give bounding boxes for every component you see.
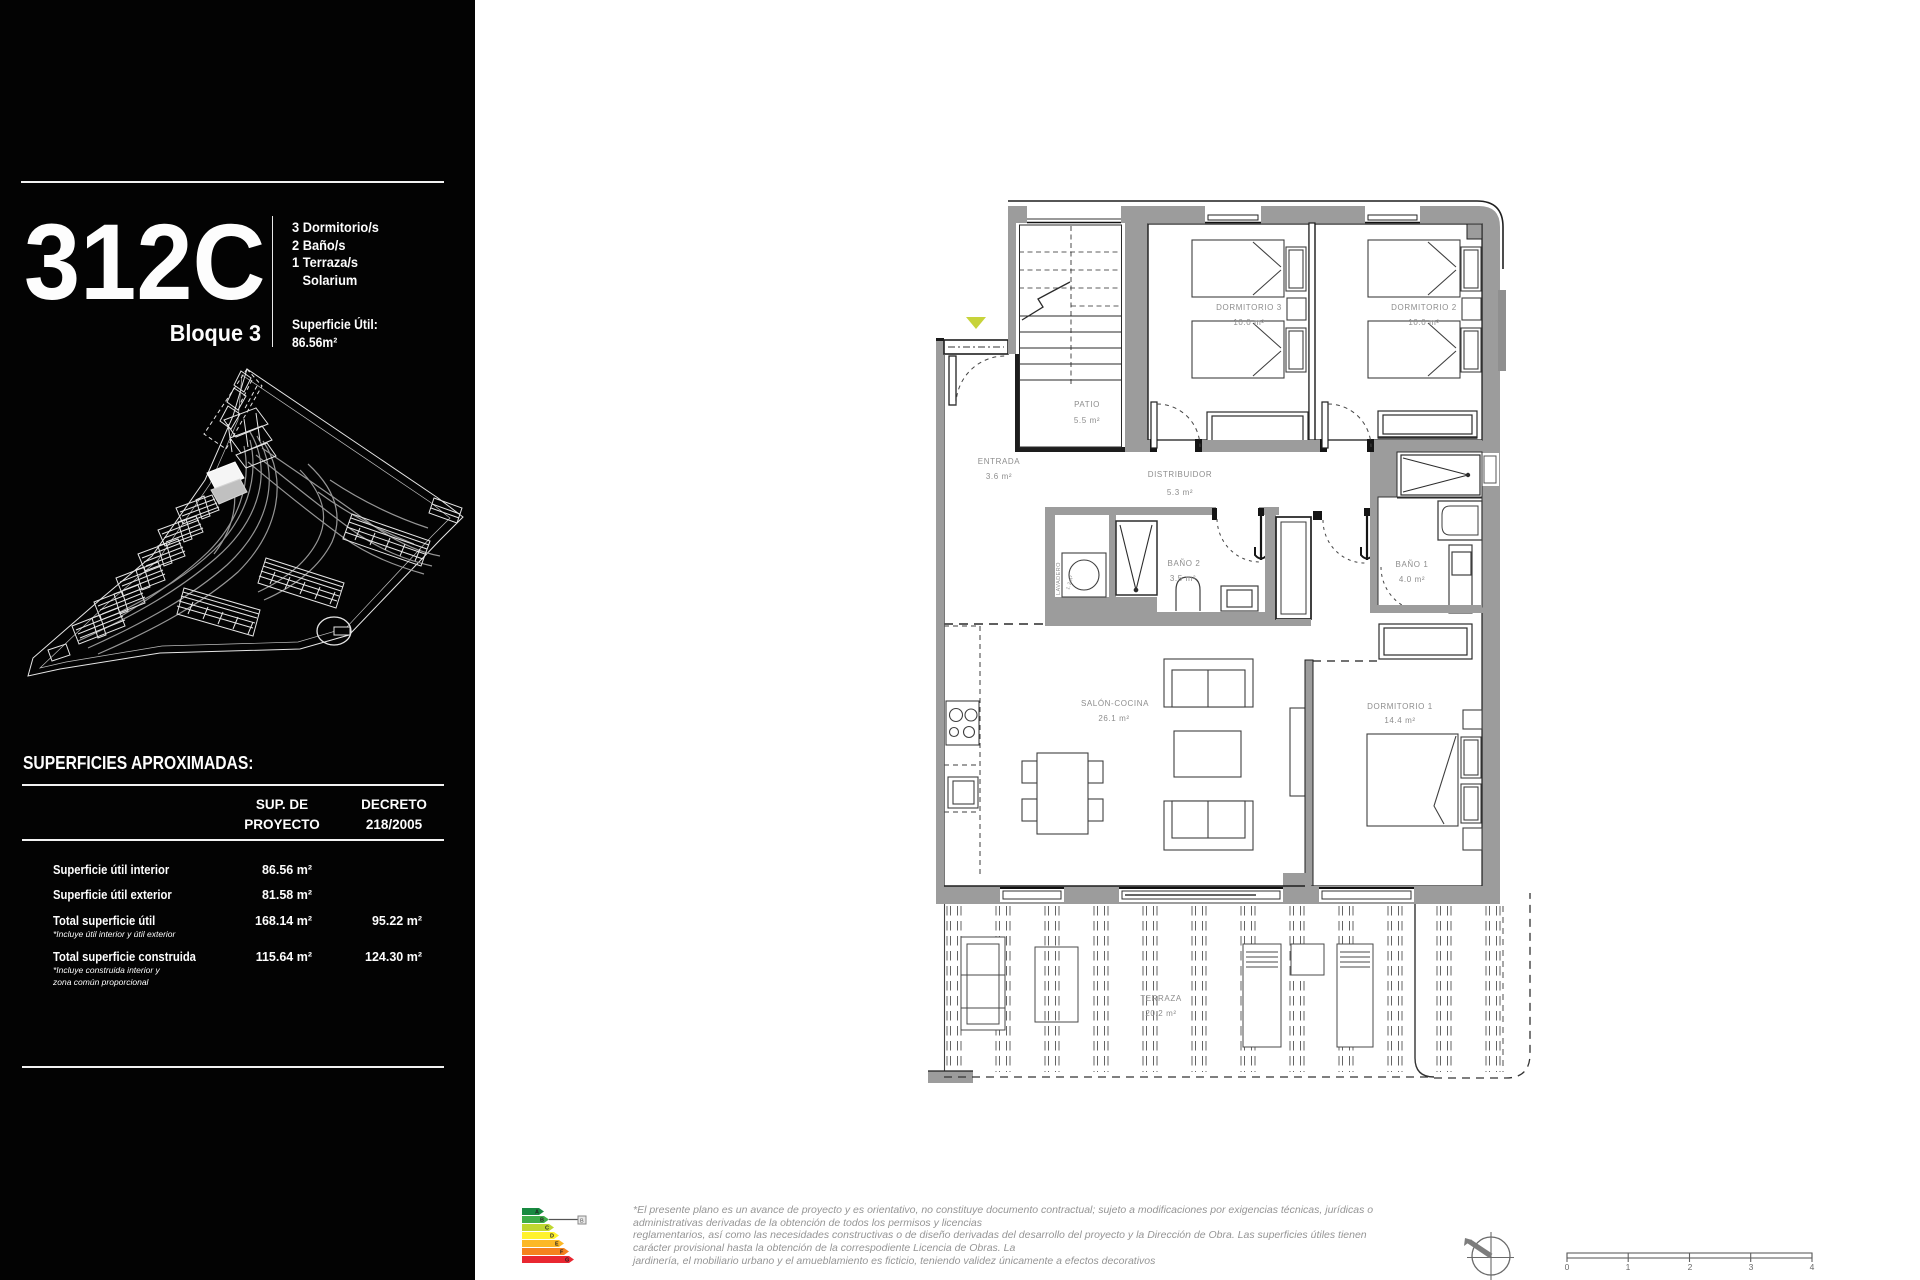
svg-text:3.5 m²: 3.5 m² — [1170, 574, 1196, 583]
svg-text:DORMITORIO 1: DORMITORIO 1 — [1367, 702, 1433, 711]
svg-text:B: B — [540, 1218, 544, 1224]
svg-text:5.3 m²: 5.3 m² — [1167, 488, 1193, 497]
svg-text:ENTRADA: ENTRADA — [978, 457, 1020, 466]
svg-text:20.2 m²: 20.2 m² — [1145, 1009, 1176, 1018]
svg-text:2: 2 — [1688, 1262, 1693, 1272]
svg-text:E: E — [555, 1242, 559, 1248]
svg-text:26.1 m²: 26.1 m² — [1098, 714, 1129, 723]
svg-text:3.6 m²: 3.6 m² — [986, 472, 1012, 481]
svg-text:LAVADERO: LAVADERO — [1056, 562, 1062, 595]
svg-text:G: G — [565, 1258, 569, 1264]
svg-text:TERRAZA: TERRAZA — [1140, 994, 1182, 1003]
svg-text:4.0 m²: 4.0 m² — [1399, 575, 1425, 584]
svg-text:DORMITORIO 3: DORMITORIO 3 — [1216, 303, 1282, 312]
svg-text:B: B — [580, 1218, 584, 1224]
svg-text:5.5 m²: 5.5 m² — [1074, 416, 1100, 425]
svg-text:4: 4 — [1810, 1262, 1815, 1272]
svg-text:PATIO: PATIO — [1074, 400, 1100, 409]
svg-text:DISTRIBUIDOR: DISTRIBUIDOR — [1148, 470, 1213, 479]
svg-text:14.4 m²: 14.4 m² — [1384, 716, 1415, 725]
svg-text:A: A — [535, 1210, 539, 1216]
svg-text:1: 1 — [1626, 1262, 1631, 1272]
svg-text:3: 3 — [1749, 1262, 1754, 1272]
svg-text:10.0 m²: 10.0 m² — [1408, 318, 1439, 327]
svg-text:DORMITORIO 2: DORMITORIO 2 — [1391, 303, 1457, 312]
svg-text:BAÑO 2: BAÑO 2 — [1168, 559, 1201, 568]
svg-text:SALÓN-COCINA: SALÓN-COCINA — [1081, 699, 1149, 708]
svg-text:D: D — [550, 1234, 554, 1240]
svg-text:BAÑO 1: BAÑO 1 — [1396, 560, 1429, 569]
svg-text:0: 0 — [1565, 1262, 1570, 1272]
svg-text:10.0 m²: 10.0 m² — [1233, 318, 1264, 327]
svg-text:C: C — [545, 1226, 549, 1232]
